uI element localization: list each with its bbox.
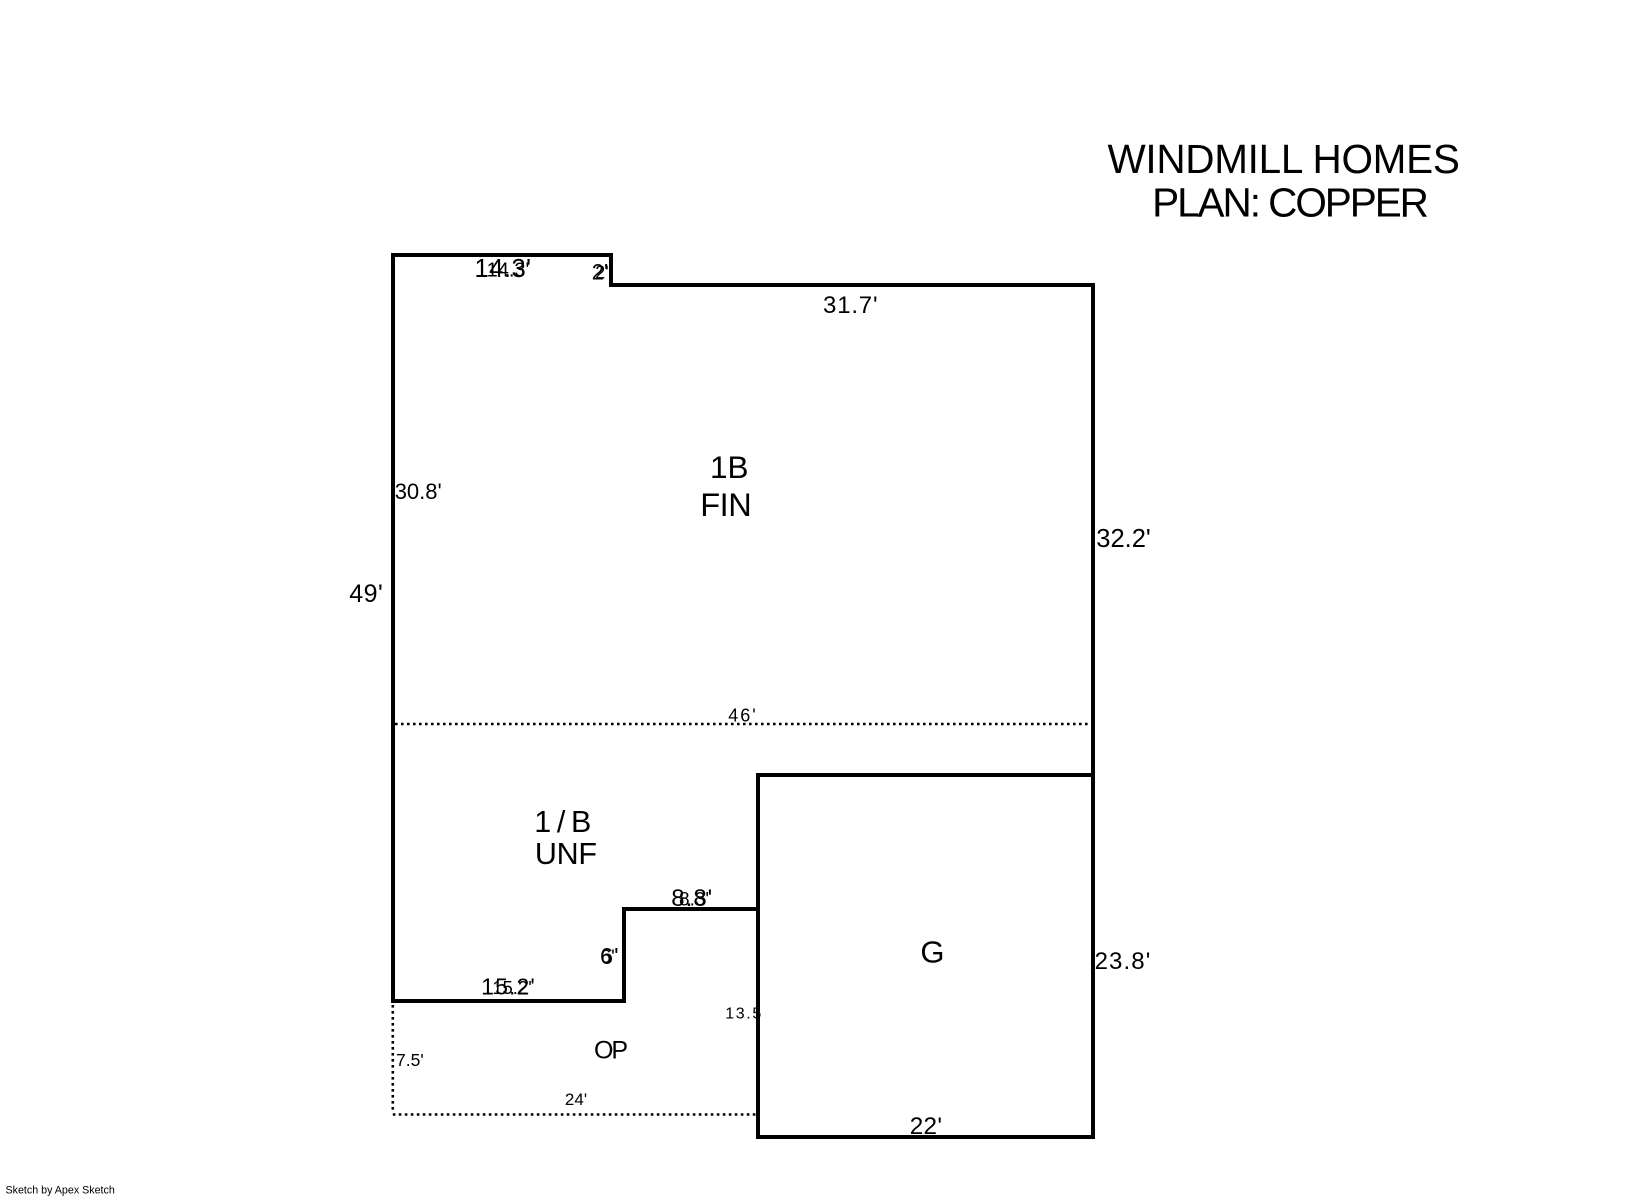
svg-text:G: G bbox=[920, 935, 944, 970]
svg-text:49': 49' bbox=[349, 580, 383, 608]
svg-text:24': 24' bbox=[565, 1090, 587, 1109]
svg-text:FIN: FIN bbox=[700, 487, 751, 523]
svg-text:OP: OP bbox=[594, 1037, 627, 1065]
svg-text:UNF: UNF bbox=[535, 837, 597, 871]
svg-text:2': 2' bbox=[595, 263, 608, 283]
svg-text:6': 6' bbox=[601, 947, 615, 968]
svg-text:WINDMILL HOMES: WINDMILL HOMES bbox=[1107, 136, 1459, 182]
svg-text:23.8': 23.8' bbox=[1095, 948, 1152, 975]
svg-text:30.8': 30.8' bbox=[395, 479, 442, 504]
svg-text:1B: 1B bbox=[710, 449, 749, 485]
svg-text:1/B: 1/B bbox=[534, 805, 591, 839]
svg-text:32.2': 32.2' bbox=[1096, 525, 1151, 553]
svg-text:14.3': 14.3' bbox=[487, 260, 530, 282]
svg-text:8.3': 8.3' bbox=[679, 890, 709, 911]
svg-text:7.5': 7.5' bbox=[396, 1050, 424, 1070]
svg-text:22': 22' bbox=[910, 1113, 943, 1140]
svg-text:15.2': 15.2' bbox=[492, 977, 532, 998]
svg-text:Sketch by Apex Sketch: Sketch by Apex Sketch bbox=[6, 1185, 115, 1197]
svg-text:PLAN: COPPER: PLAN: COPPER bbox=[1152, 180, 1428, 226]
svg-text:46': 46' bbox=[728, 706, 757, 726]
svg-text:31.7': 31.7' bbox=[823, 292, 878, 319]
svg-text:13.5: 13.5 bbox=[725, 1006, 763, 1023]
